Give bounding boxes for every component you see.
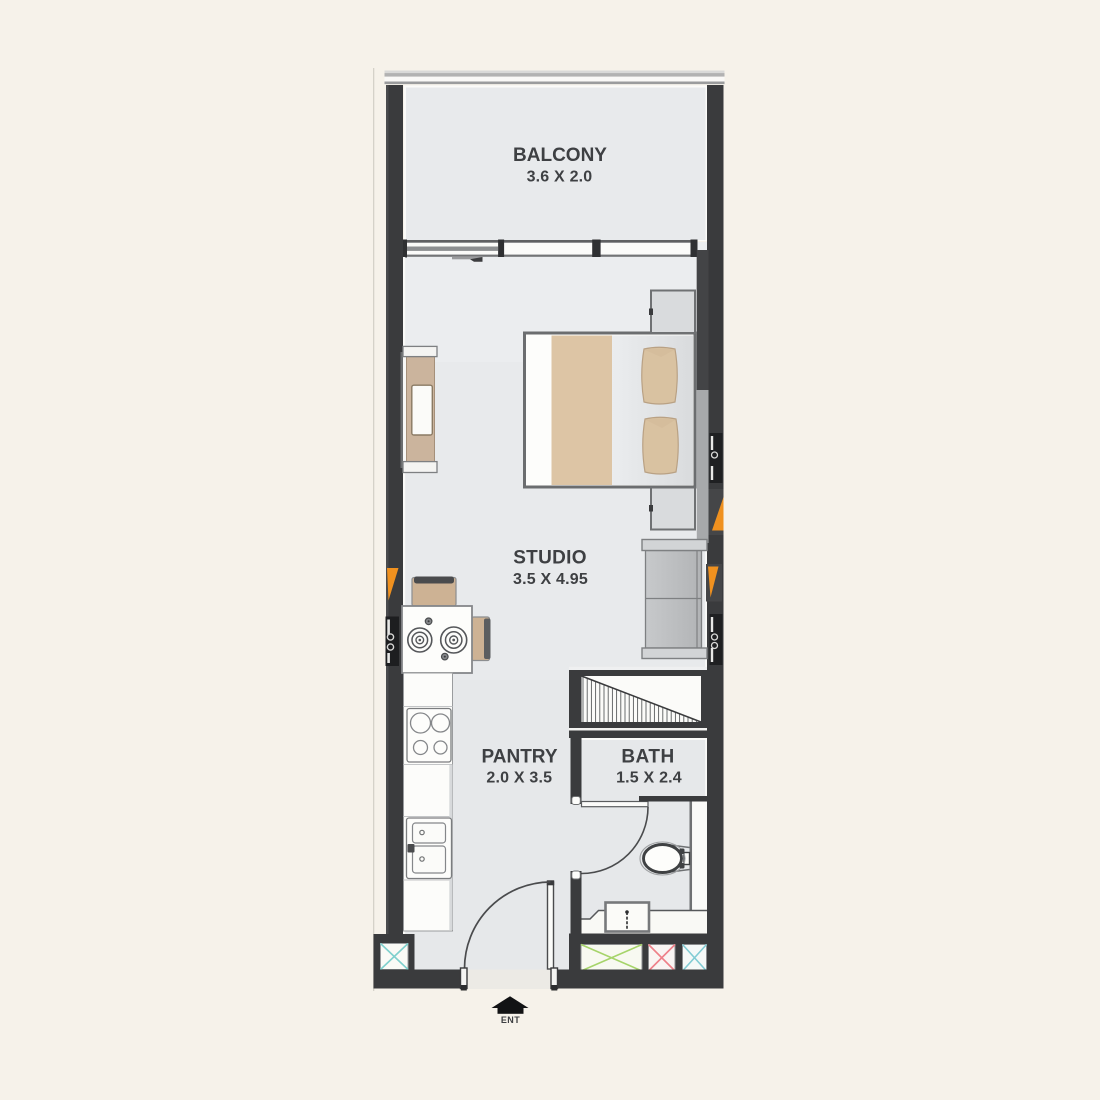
svg-text:PANTRY: PANTRY: [482, 747, 558, 768]
svg-text:ENT: ENT: [501, 1015, 520, 1025]
svg-text:BATH: BATH: [621, 747, 674, 768]
svg-text:2.0 X 3.5: 2.0 X 3.5: [486, 770, 552, 787]
svg-text:BALCONY: BALCONY: [513, 145, 607, 166]
svg-text:1.5 X 2.4: 1.5 X 2.4: [616, 770, 682, 787]
svg-text:STUDIO: STUDIO: [513, 548, 587, 569]
svg-text:3.5 X 4.95: 3.5 X 4.95: [513, 571, 588, 588]
svg-text:3.6 X 2.0: 3.6 X 2.0: [527, 169, 593, 186]
